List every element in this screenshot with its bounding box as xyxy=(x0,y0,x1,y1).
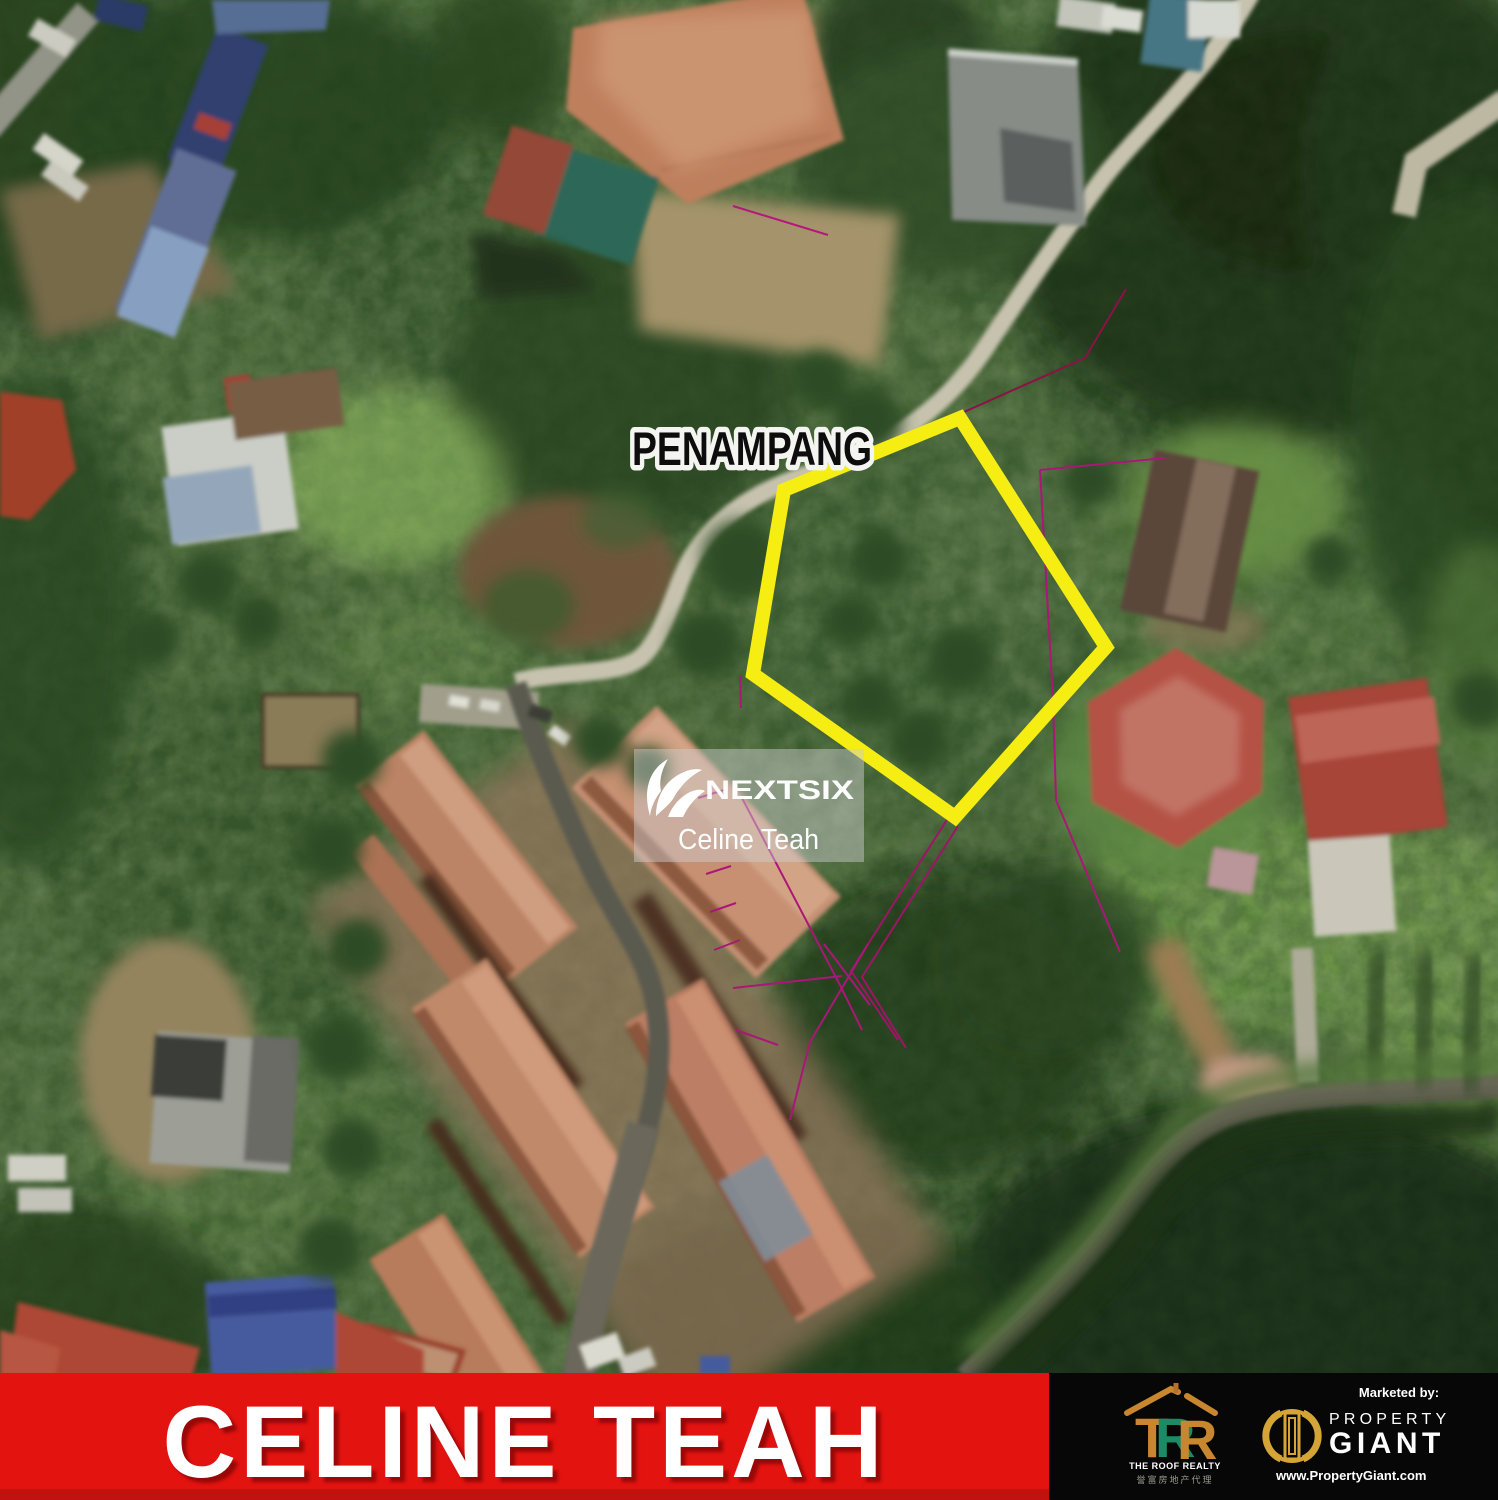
svg-text:NEXTSIX: NEXTSIX xyxy=(705,775,854,805)
svg-text:PENAMPANG: PENAMPANG xyxy=(632,422,872,475)
svg-text:Celine Teah: Celine Teah xyxy=(678,824,819,856)
